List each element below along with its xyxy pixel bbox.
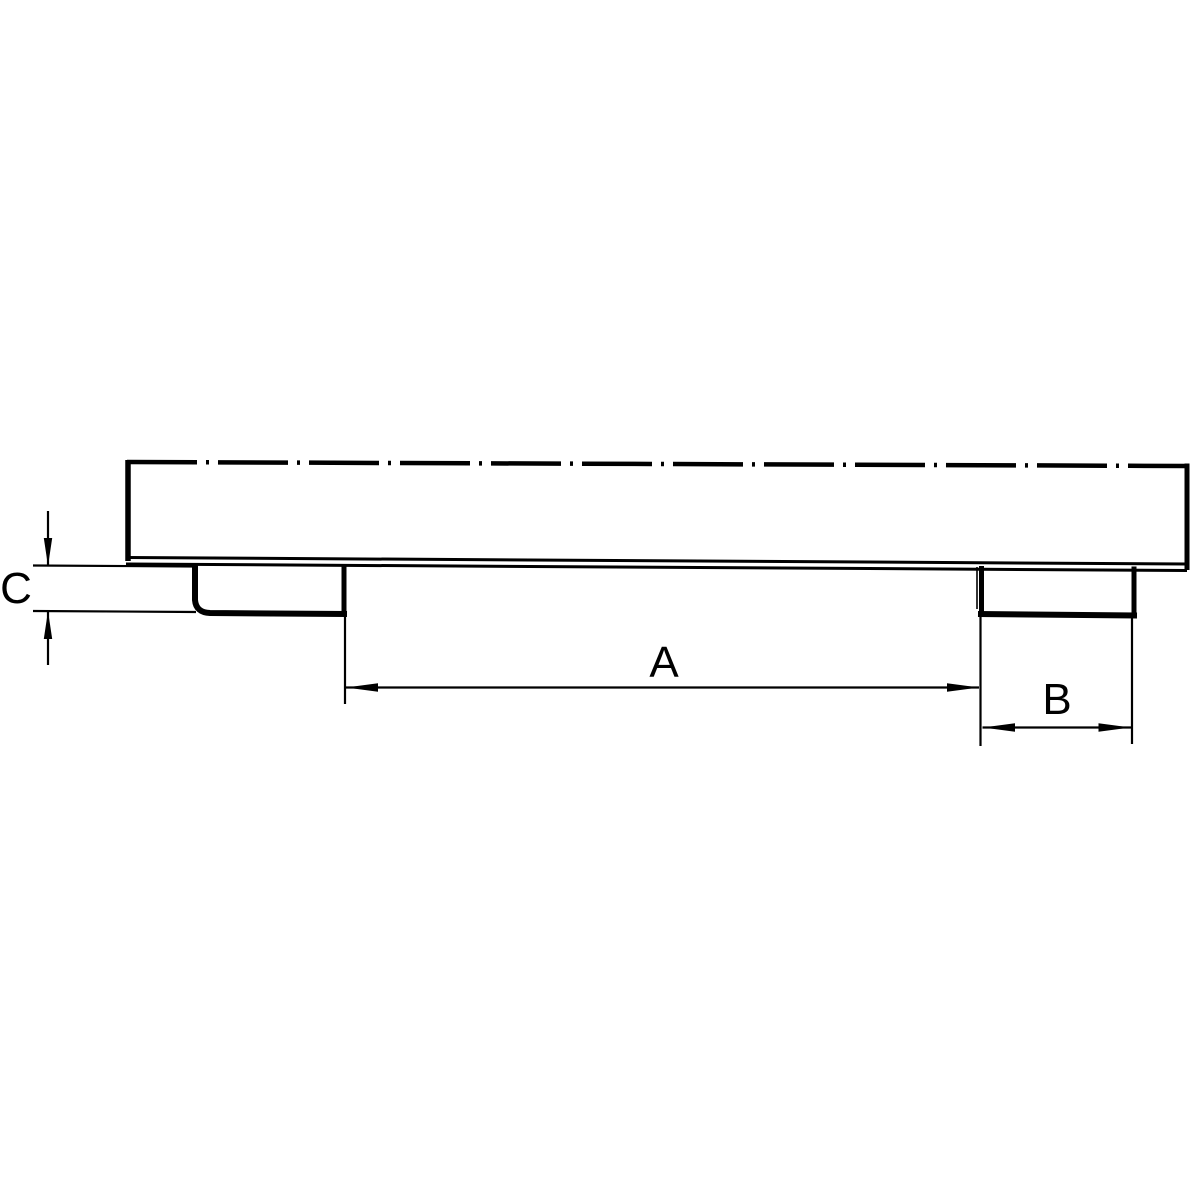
dim-b-label: B [1042, 675, 1071, 724]
dimension-c: C [0, 511, 196, 665]
dim-a-arrow-left [346, 683, 378, 692]
dim-c-top-extension-line [33, 566, 196, 567]
dim-b-arrow-right [1099, 723, 1131, 732]
dim-c-arrow-down [44, 538, 52, 566]
dim-c-arrow-up [44, 611, 52, 639]
dimension-a: A [346, 638, 979, 692]
container-body [126, 460, 1189, 571]
dim-a-arrow-right [947, 683, 979, 692]
dim-b-arrow-left [983, 723, 1015, 732]
fork-pocket-left [195, 565, 347, 704]
body-top-phantom-line [127, 462, 1189, 466]
body-bottom-outer-line [126, 564, 1187, 571]
dim-a-label: A [649, 638, 679, 687]
dim-c-label: C [0, 564, 32, 613]
body-bottom-inner-line [126, 558, 1187, 565]
technical-dimension-drawing: A B C [0, 0, 1200, 1200]
dim-c-bottom-extension-line [33, 611, 196, 612]
pocket-bottom [978, 614, 1137, 616]
dimension-b: B [983, 675, 1132, 732]
pocket-left-wall-and-bottom [195, 565, 347, 614]
drawing-canvas: A B C [0, 0, 1200, 1200]
